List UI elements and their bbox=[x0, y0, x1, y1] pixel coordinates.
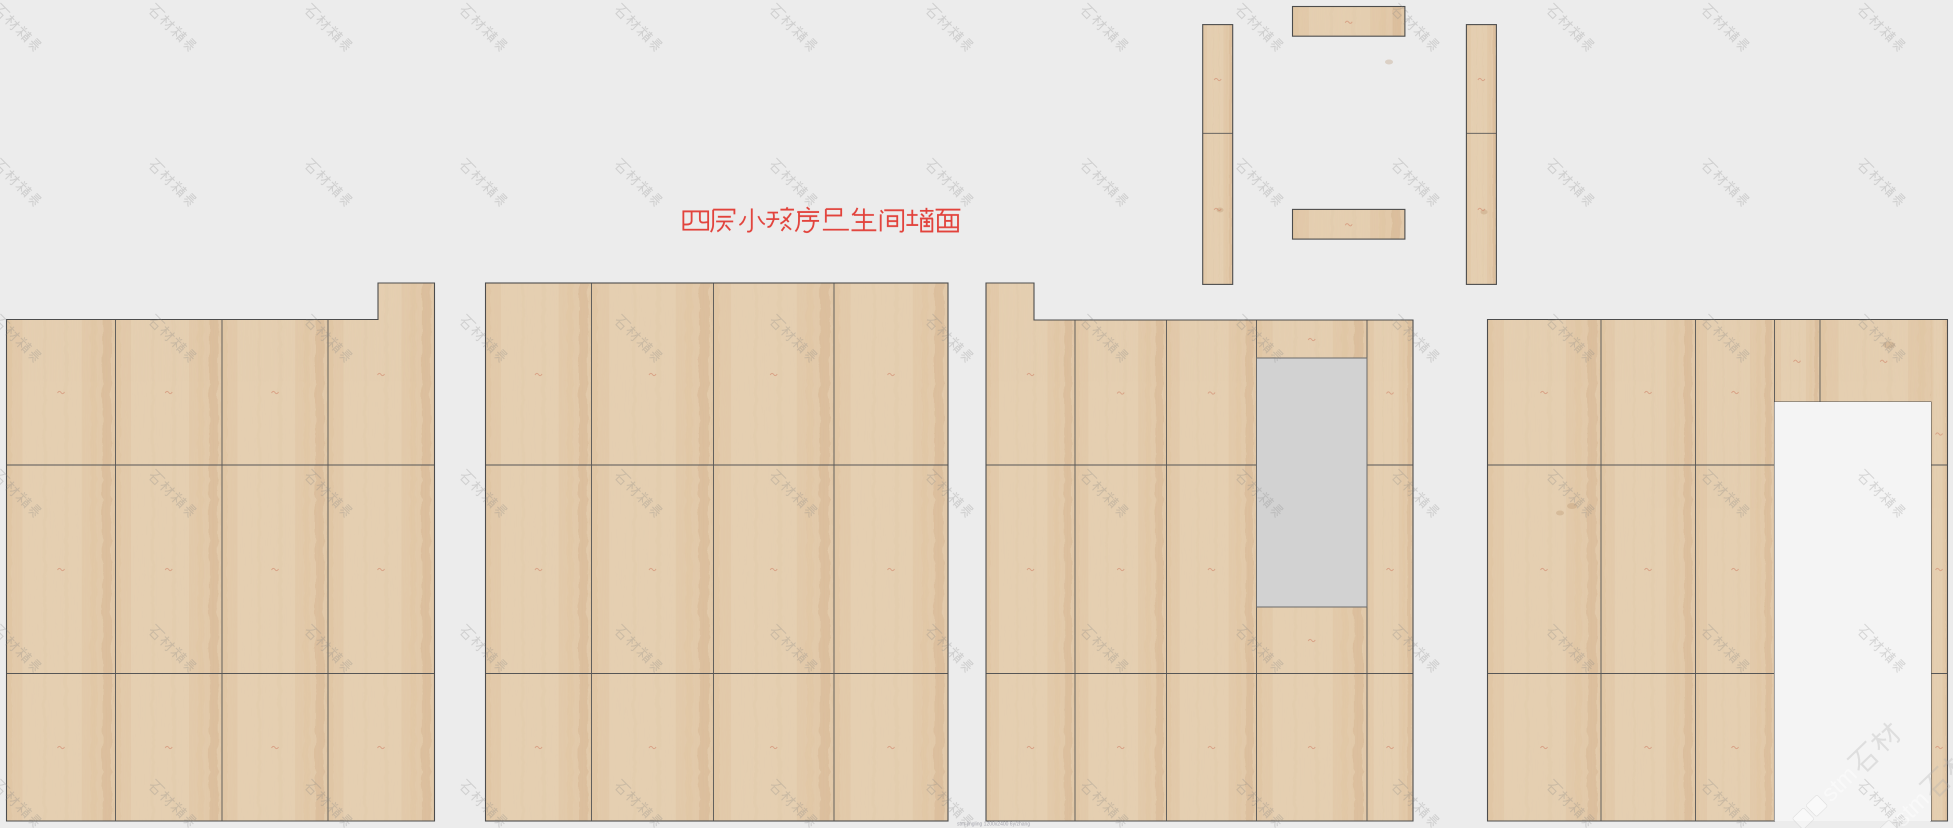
svg-text:stm-jingling 1200x2400 6y/zhan: stm-jingling 1200x2400 6y/zhang bbox=[957, 822, 1030, 828]
